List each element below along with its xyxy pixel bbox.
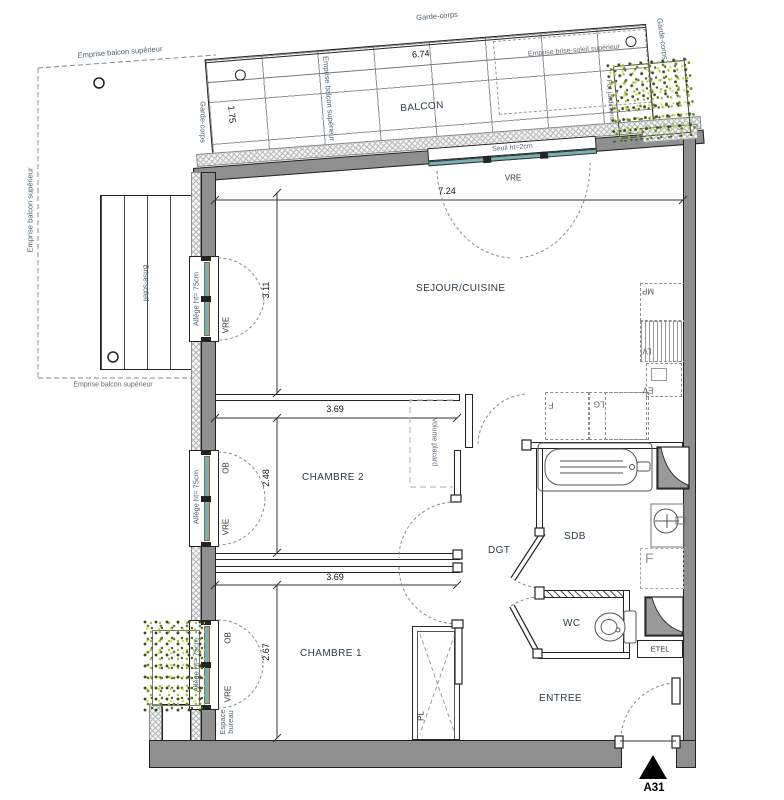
room-label-entree: ENTREE	[539, 693, 582, 704]
window-shutter-label: OB	[224, 632, 233, 644]
entrance-marker-label: A31	[643, 782, 664, 794]
emprise-left-label: Emprise balcon supérieur	[26, 167, 35, 252]
room-label-chambre1: CHAMBRE 1	[300, 648, 362, 659]
room-label-dgt: DGT	[488, 545, 510, 556]
dim-chambre2-width: 3.69	[326, 404, 344, 414]
dim-chambre1-width: 3.69	[326, 572, 344, 582]
sdb-reservation-label: F	[645, 550, 654, 566]
entrance-marker-icon	[639, 755, 667, 779]
emprise-bottom-label: Emprise balcon supérieur	[73, 382, 152, 389]
allege-label: Allège ht= 75cm	[192, 638, 201, 692]
guardrail-left-label: Garde-corps	[199, 101, 208, 143]
dim-sejour-depth: 3.11	[261, 282, 271, 299]
linework-layer	[0, 0, 784, 800]
kitchen-label-lg: LG	[594, 400, 605, 409]
room-label-chambre2: CHAMBRE 2	[302, 472, 364, 483]
allege-label: Allège ht= 75cm	[192, 470, 201, 524]
room-label-sejour: SEJOUR/CUISINE	[416, 283, 506, 294]
allege-label: Allège ht= 75cm	[192, 272, 201, 326]
room-label-sdb: SDB	[564, 531, 586, 542]
kitchen-label-ev: EV	[643, 386, 654, 395]
dim-chambre1-depth: 2.67	[261, 643, 271, 661]
window-type-label: VRE	[224, 686, 233, 702]
floor-plan: 6.74 1.75 BALCON Emprise balcon supérieu…	[0, 0, 784, 800]
window-type-label: VRE	[222, 519, 231, 535]
espace-bureau-label: Espace bureau	[219, 702, 236, 742]
kitchen-label-fridge: F	[549, 401, 554, 410]
closet-pl-label: PL	[417, 711, 426, 721]
kitchen-label-lv: LV	[642, 347, 651, 356]
room-label-wc: WC	[563, 618, 580, 629]
etel-label: ETEL	[651, 645, 670, 654]
brise-soleil-label: Brise-soleil	[142, 265, 151, 302]
window-shutter-label: OB	[222, 462, 231, 474]
dim-sejour-width: 7.24	[438, 186, 456, 196]
kitchen-label-mp: MP	[642, 287, 654, 296]
balcony-door-type-label: VRE	[505, 174, 521, 183]
window-type-label: VRE	[222, 317, 231, 333]
volume-placard-label: Volume placard	[431, 418, 438, 466]
dim-chambre2-depth: 2.48	[261, 469, 271, 487]
